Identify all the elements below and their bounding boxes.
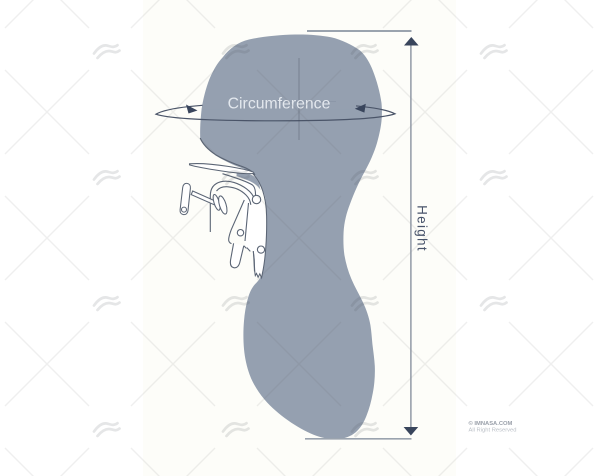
svg-text:Circumference: Circumference (228, 96, 331, 113)
svg-text:Height: Height (415, 205, 430, 252)
svg-text:All Right Reserved: All Right Reserved (469, 428, 517, 434)
svg-text:© IMNASA.COM: © IMNASA.COM (469, 420, 513, 427)
